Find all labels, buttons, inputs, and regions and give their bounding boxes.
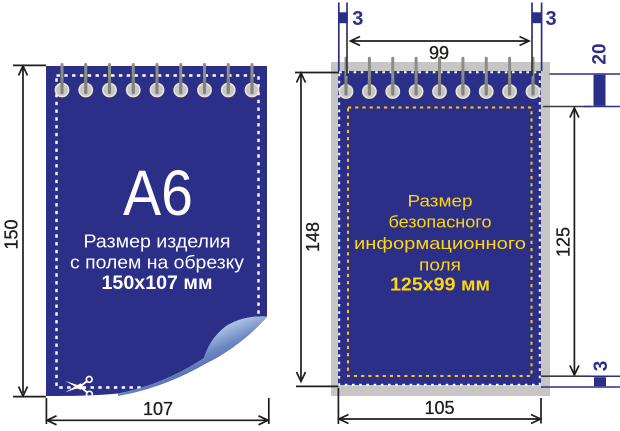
svg-text:107: 107 xyxy=(143,399,173,419)
svg-text:99: 99 xyxy=(429,43,449,63)
svg-text:безопасного: безопасного xyxy=(389,213,492,232)
svg-text:125: 125 xyxy=(554,227,574,257)
svg-text:20: 20 xyxy=(590,43,611,64)
svg-text:с полем на обрезку: с полем на обрезку xyxy=(70,253,244,273)
svg-text:Размер: Размер xyxy=(408,191,473,210)
svg-text:3: 3 xyxy=(546,8,557,30)
svg-text:3: 3 xyxy=(591,361,612,372)
svg-text:поля: поля xyxy=(419,255,461,274)
svg-text:Размер изделия: Размер изделия xyxy=(84,232,231,252)
svg-text:148: 148 xyxy=(303,222,323,252)
svg-text:105: 105 xyxy=(424,398,454,418)
svg-text:A6: A6 xyxy=(123,157,193,229)
svg-text:125х99 мм: 125х99 мм xyxy=(390,273,490,294)
svg-text:150: 150 xyxy=(2,219,22,249)
svg-text:информационного: информационного xyxy=(354,234,526,253)
svg-text:3: 3 xyxy=(352,8,363,30)
svg-text:150х107 мм: 150х107 мм xyxy=(102,273,213,294)
